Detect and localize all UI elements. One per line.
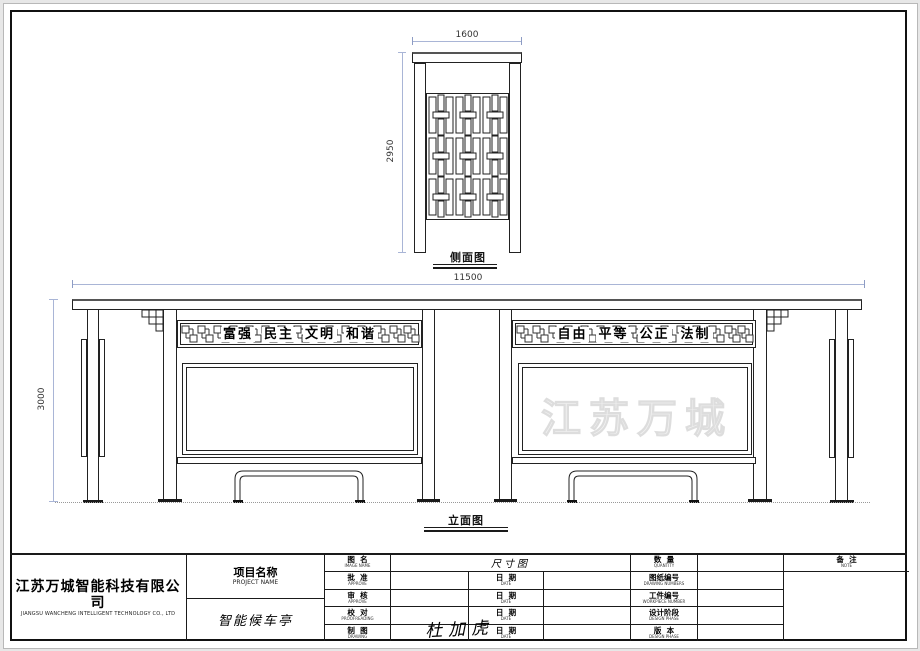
tb-label-approve1: 批 准 APPROVE: [325, 572, 390, 589]
elevation-underline: [424, 527, 508, 528]
band-left-text: 富强 民主 文明 和谐: [180, 326, 419, 343]
tb-label-workpiece-number: 工件编号 WORKPIECE NUMBER: [631, 590, 697, 606]
pillar-outer-left: [87, 309, 99, 502]
dim-tick: [72, 280, 73, 288]
project-name-value: 智能候车亭: [218, 610, 293, 629]
elevation-underline2: [424, 530, 508, 532]
dim-endbar: [398, 52, 406, 53]
ground-line: [55, 502, 870, 503]
tb-label-quantity: 数 量 QUANTITY: [631, 554, 697, 571]
tb-label-design-phase: 设计阶段 DESIGN PHASE: [631, 607, 697, 624]
company-name-en: JIANGSU WANCHENG INTELLIGENT TECHNOLOGY …: [21, 611, 175, 617]
side-height-dim-line: [402, 52, 403, 253]
pillar-outer-right: [835, 309, 848, 502]
elevation-label: 立面图: [438, 512, 494, 528]
side-left-leg: [414, 63, 426, 253]
tb-line: [324, 571, 909, 572]
watermark-text: 江苏万城: [541, 386, 733, 444]
panel-left-inner: [186, 367, 414, 451]
elev-height-dim-line: [53, 299, 54, 502]
tb-line: [324, 624, 783, 625]
pillar-mid-left: [422, 309, 435, 500]
tb-line: [324, 589, 783, 590]
company-cell: 江苏万城智能科技有限公司 JIANGSU WANCHENG INTELLIGEN…: [10, 555, 186, 640]
corner-bracket-left: [142, 310, 163, 331]
tb-line: [324, 606, 783, 607]
side-width-dim-line: [412, 41, 522, 42]
tb-label-drawing: 制 图 DRAWING: [325, 625, 390, 641]
project-label-cell: 项目名称 PROJECT NAME: [187, 555, 324, 598]
drafter-signature: 杜加虎: [424, 613, 494, 642]
tb-line: [697, 554, 698, 641]
corner-bracket-right: [767, 310, 788, 331]
tb-label-proofread: 校 对 PROOFREADING: [325, 607, 390, 624]
tb-note-label: 备 注 NOTE: [784, 554, 909, 571]
dim-tick: [412, 37, 413, 45]
cad-sheet: 1600 2950 侧面图 11500 3000: [0, 0, 920, 651]
side-height-dim-text: 2950: [386, 131, 396, 171]
end-sign-slat: [829, 339, 835, 458]
dim-tick: [864, 280, 865, 288]
elev-width-dim-line: [72, 284, 865, 285]
rail-right: [512, 457, 756, 464]
project-label-en: PROJECT NAME: [233, 579, 278, 586]
elev-height-dim-text: 3000: [37, 379, 47, 419]
dim-endbar: [49, 299, 58, 300]
end-sign-slat: [81, 339, 87, 457]
band-right-text: 自由 平等 公正 法制: [515, 326, 753, 343]
side-view-underline: [433, 264, 497, 265]
tb-label-tumin: 图 名 IMAGE NAME: [325, 554, 390, 571]
company-name-cn: 江苏万城智能科技有限公司: [10, 579, 186, 611]
dim-tick: [521, 37, 522, 45]
bench-right: [567, 469, 699, 503]
bench-left: [233, 469, 365, 503]
drawing-type-value: 尺寸图: [491, 555, 530, 570]
dim-endbar: [398, 252, 406, 253]
side-lattice-pattern: [428, 95, 507, 218]
elev-width-dim-text: 11500: [438, 273, 498, 283]
project-name-cell: 智能候车亭: [187, 599, 324, 640]
tb-date-label: 日 期 DATE: [469, 572, 543, 589]
pillar-mid-right: [499, 309, 512, 500]
tb-label-drawing-number: 图纸编号 DRAWING NUMBERS: [631, 572, 697, 589]
tb-label-review: 审 核 APPROVE: [325, 590, 390, 606]
side-view-label: 侧面图: [440, 249, 496, 265]
side-right-leg: [509, 63, 521, 253]
project-label-cn: 项目名称: [234, 567, 278, 579]
elev-roof: [72, 299, 862, 310]
end-sign-slat: [848, 339, 854, 458]
tb-date-label: 日 期 DATE: [469, 590, 543, 606]
side-roof: [412, 52, 522, 63]
side-width-dim-text: 1600: [437, 30, 497, 40]
tb-label-version: 版 本 DESIGN PHASE: [631, 625, 697, 641]
rail-left: [177, 457, 422, 464]
pillar-inner-left: [163, 309, 177, 500]
drawing-type-cell: 尺寸图: [391, 554, 630, 571]
end-sign-slat: [99, 339, 105, 457]
side-view-underline2: [433, 267, 497, 269]
